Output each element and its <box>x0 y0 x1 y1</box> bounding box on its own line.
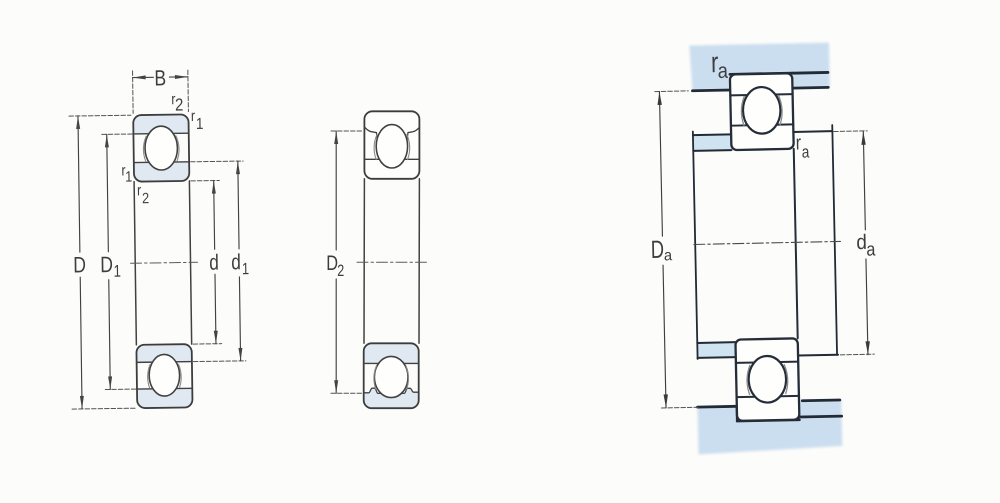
svg-text:r: r <box>137 181 142 199</box>
svg-text:1: 1 <box>113 262 121 281</box>
svg-text:a: a <box>866 238 876 260</box>
svg-text:1: 1 <box>125 167 133 184</box>
svg-text:d: d <box>209 251 219 276</box>
svg-text:2: 2 <box>337 262 344 280</box>
svg-text:D: D <box>326 252 338 276</box>
svg-text:r: r <box>795 130 801 154</box>
svg-text:D: D <box>73 253 86 278</box>
svg-text:a: a <box>717 60 728 84</box>
svg-text:2: 2 <box>175 95 184 115</box>
svg-text:D: D <box>651 235 665 264</box>
svg-text:B: B <box>154 67 166 91</box>
svg-text:1: 1 <box>196 116 204 133</box>
svg-text:D: D <box>100 253 113 278</box>
svg-text:1: 1 <box>242 261 249 279</box>
svg-text:r: r <box>191 107 196 125</box>
svg-text:a: a <box>802 143 810 162</box>
svg-text:a: a <box>664 247 673 265</box>
svg-text:2: 2 <box>142 189 150 206</box>
svg-text:d: d <box>231 250 241 275</box>
